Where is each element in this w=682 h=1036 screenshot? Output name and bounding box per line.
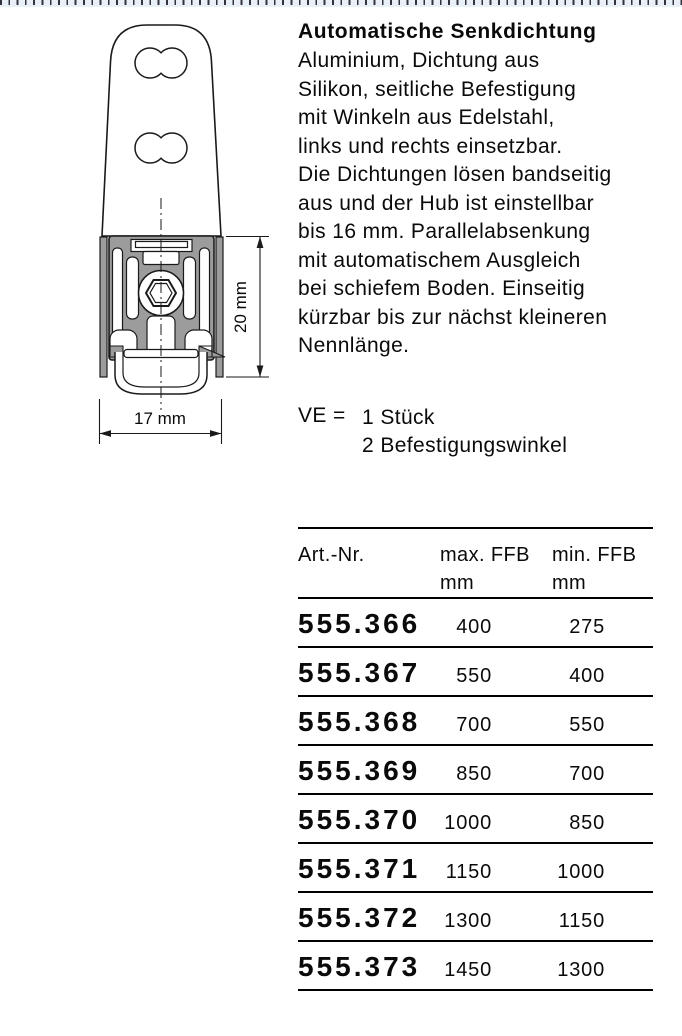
packaging-unit-items: 1 Stück 2 Befestigungswinkel [362,404,567,460]
max-ffb-cell: 400 [440,616,492,638]
description-line: bis 16 mm. Parallelabsenkung [298,218,612,247]
description-line: kürzbar bis zur nächst kleineren [298,304,612,333]
height-dimension: 20 mm [226,237,269,378]
table-row: 555.370 1000 850 [298,795,653,844]
min-ffb-cell: 850 [492,812,605,834]
min-ffb-cell: 700 [492,763,605,785]
description-line: links und rechts einsetzbar. [298,133,612,162]
article-spec-table: Art.-Nr. max. FFB mm min. FFB mm 555.366… [298,527,653,991]
art-number-cell: 555.368 [298,708,440,736]
description-line: Aluminium, Dichtung aus [298,47,612,76]
description-line: bei schiefem Boden. Einseitig [298,275,612,304]
column-header-max-ffb: max. FFB mm [440,542,552,597]
table-row: 555.367 550 400 [298,648,653,697]
table-row: 555.368 700 550 [298,697,653,746]
width-dimension-label: 17 mm [134,409,186,428]
min-ffb-cell: 400 [492,665,605,687]
max-ffb-cell: 1000 [440,812,492,834]
min-ffb-cell: 1150 [492,910,605,932]
table-row: 555.366 400 275 [298,599,653,648]
description-line: aus und der Hub ist einstellbar [298,190,612,219]
table-row: 555.371 1150 1000 [298,844,653,893]
packaging-item: 1 Stück [362,404,567,432]
description-line: mit automatischem Ausgleich [298,247,612,276]
description-line: Nennlänge. [298,332,612,361]
table-row: 555.372 1300 1150 [298,893,653,942]
bracket-slot-hole-top [135,48,187,78]
max-ffb-cell: 1150 [440,861,492,883]
min-ffb-cell: 550 [492,714,605,736]
product-title: Automatische Senkdichtung [298,20,597,44]
min-ffb-cell: 1000 [492,861,605,883]
art-number-cell: 555.369 [298,757,440,785]
width-dimension: 17 mm [100,399,222,444]
min-ffb-cell: 1300 [492,959,605,981]
product-description: Aluminium, Dichtung aus Silikon, seitlic… [298,47,612,361]
column-header-art-nr: Art.-Nr. [298,542,440,597]
max-ffb-cell: 1450 [440,959,492,981]
art-number-cell: 555.371 [298,855,440,883]
table-row: 555.369 850 700 [298,746,653,795]
height-dimension-label: 20 mm [231,281,250,333]
art-number-cell: 555.366 [298,610,440,638]
max-ffb-cell: 550 [440,665,492,687]
seal-profile-cross-section [100,236,225,394]
art-number-cell: 555.367 [298,659,440,687]
description-line: Silikon, seitliche Befestigung [298,76,612,105]
description-line: Die Dichtungen lösen bandseitig [298,161,612,190]
art-number-cell: 555.373 [298,953,440,981]
packaging-item: 2 Befestigungswinkel [362,432,567,460]
min-ffb-cell: 275 [492,616,605,638]
bracket-slot-hole-bottom [135,133,187,163]
technical-drawing: 20 mm 17 mm [0,0,300,470]
max-ffb-cell: 1300 [440,910,492,932]
table-row: 555.373 1450 1300 [298,942,653,991]
table-header-row: Art.-Nr. max. FFB mm min. FFB mm [298,529,653,599]
packaging-unit-label: VE = [298,404,346,428]
description-line: mit Winkeln aus Edelstahl, [298,104,612,133]
max-ffb-cell: 850 [440,763,492,785]
art-number-cell: 555.372 [298,904,440,932]
art-number-cell: 555.370 [298,806,440,834]
column-header-min-ffb: min. FFB mm [552,542,653,597]
max-ffb-cell: 700 [440,714,492,736]
